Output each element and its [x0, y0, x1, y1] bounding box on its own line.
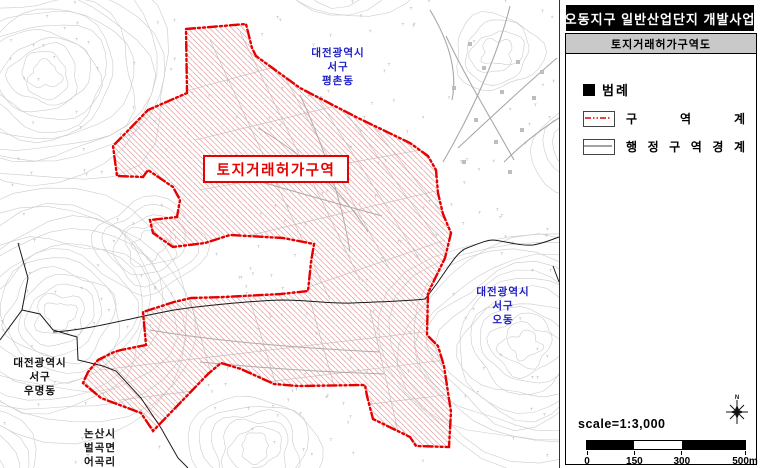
legend-item-label: 구 역 계 — [626, 110, 745, 127]
buildings — [452, 42, 544, 174]
scale-bar-segment — [682, 441, 745, 449]
gray-roads — [430, 6, 559, 162]
scale-tick-label: 500m — [732, 456, 758, 467]
legend-item-label: 행 정 구 역 경 계 — [626, 138, 745, 155]
admin-boundary-symbol-icon — [583, 139, 615, 155]
scale-bar-segment — [634, 441, 681, 449]
place-label: 대전광역시서구오동 — [476, 285, 529, 328]
scale-text: scale=1:3,000 — [578, 417, 748, 431]
scale-tick — [681, 451, 682, 455]
legend-item-admin-boundary: 행 정 구 역 경 계 — [583, 138, 756, 155]
screenshot: 대전광역시서구평촌동대전광역시서구오동대전광역시서구우명동논산시벌곡면어곡리 토… — [0, 0, 760, 468]
map-canvas — [0, 0, 559, 468]
place-label: 논산시벌곡면어곡리 — [84, 427, 116, 468]
legend-item-zone-boundary: 구 역 계 — [583, 110, 756, 127]
place-label: 대전광역시서구우명동 — [13, 356, 66, 399]
place-label: 대전광역시서구평촌동 — [311, 46, 364, 89]
zone-boundary-symbol-icon — [583, 111, 615, 127]
info-panel: 오동지구 일반산업단지 개발사업 토지거래허가구역도 범례 구 역 계 — [560, 0, 760, 468]
scale-tick — [634, 451, 635, 455]
legend-heading: 범례 — [583, 80, 756, 99]
map-area: 대전광역시서구평촌동대전광역시서구오동대전광역시서구우명동논산시벌곡면어곡리 토… — [0, 0, 560, 468]
project-title: 오동지구 일반산업단지 개발사업 — [566, 5, 754, 31]
panel-frame: 토지거래허가구역도 범례 구 역 계 — [565, 33, 757, 465]
scale-tick — [587, 451, 588, 455]
scale-bar: 0150300500m — [586, 440, 746, 450]
north-arrow-icon: N — [724, 393, 750, 430]
scale-tick-label: 150 — [626, 456, 643, 467]
legend-heading-text: 범례 — [602, 80, 630, 99]
scale-tick-label: 0 — [584, 456, 590, 467]
legend-square-icon — [583, 84, 595, 96]
map-subtitle: 토지거래허가구역도 — [566, 34, 756, 54]
scale-tick — [745, 451, 746, 455]
legend: 범례 구 역 계 행 정 구 역 — [583, 80, 756, 155]
scale-bar-segment — [587, 441, 634, 449]
scale-tick-label: 300 — [673, 456, 690, 467]
scale-block: N scale=1:3,000 — [578, 417, 748, 450]
permit-zone-label: 토지거래허가구역 — [203, 155, 349, 183]
